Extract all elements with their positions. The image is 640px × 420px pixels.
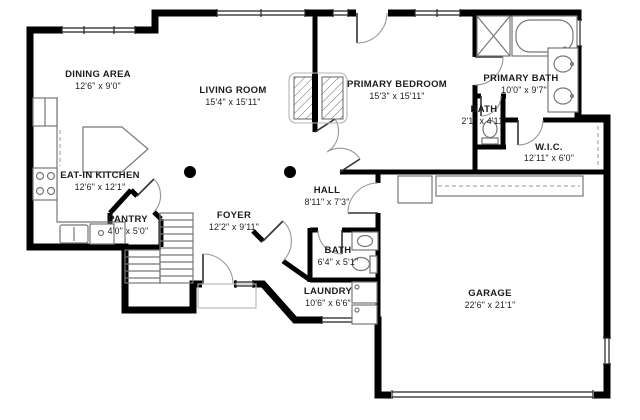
fireplace-masonry-right (322, 77, 343, 119)
room-dims-pantry: 4'0" x 5'0" (108, 226, 149, 236)
stair-treads-upper (160, 220, 193, 276)
room-label-eat-in-kitchen: EAT-IN KITCHEN (60, 170, 140, 181)
room-dims-primary-bedroom: 15'3" x 15'11" (369, 91, 424, 101)
room-dims-hall: 8'11" x 7'3" (304, 197, 349, 207)
toilet-tank (482, 138, 498, 144)
garage-fixtures (398, 176, 583, 203)
door-leaf (263, 221, 283, 241)
kitchen-island (83, 127, 148, 172)
room-label-primary-bath: PRIMARY BATH (483, 73, 558, 84)
bedroom-patio-door (356, 9, 388, 43)
garage-overhead-door (391, 390, 594, 399)
fireplace-masonry-left (294, 77, 315, 119)
door-swing-arc (348, 183, 378, 213)
room-label-living-room: LIVING ROOM (199, 85, 266, 96)
door-swing-arc (203, 254, 233, 284)
interior-walls (110, 13, 607, 320)
door-swing-arc (283, 221, 291, 261)
toilet-tank (370, 256, 377, 273)
bath-vanity (352, 232, 378, 250)
window-mask (333, 9, 348, 17)
room-label-hall-bath: BATH (325, 245, 352, 256)
interior-wall-segments (110, 13, 607, 320)
room-label-toilet-room: BATH (471, 104, 498, 115)
door-swing-arc (357, 13, 387, 43)
living-room-window (217, 9, 305, 17)
room-dims-primary-bath: 10'0" x 9'7" (501, 85, 547, 95)
post (184, 166, 196, 178)
garage-storage-cabinet (398, 176, 432, 203)
front-door (202, 254, 234, 288)
window-mask (603, 338, 611, 364)
door-swing-arc (327, 119, 360, 159)
room-dims-living-room: 15'4" x 15'11" (205, 97, 260, 107)
pantry-door (137, 179, 161, 212)
room-label-hall: HALL (314, 185, 341, 196)
door-swing-arc (154, 179, 161, 212)
room-dims-garage: 22'6" x 21'1" (465, 300, 516, 310)
bedroom-corner-french-doors (315, 119, 360, 172)
structural-posts (184, 166, 296, 178)
room-label-foyer: FOYER (217, 210, 251, 221)
door-leaf (137, 179, 154, 196)
room-dims-laundry: 10'6" x 6'6" (305, 298, 351, 308)
room-label-primary-bedroom: PRIMARY BEDROOM (347, 79, 447, 90)
room-label-dining-area: DINING AREA (65, 69, 131, 80)
room-label-garage: GARAGE (468, 288, 512, 299)
floor-plan: DINING AREA 12'6" x 9'0" LIVING ROOM 15'… (0, 0, 640, 420)
stair-treads-lower (125, 257, 160, 278)
door-opening (356, 9, 388, 17)
post (284, 166, 296, 178)
bedroom-window (415, 9, 460, 17)
room-dims-dining-area: 12'6" x 9'0" (75, 81, 121, 91)
window-mask (62, 26, 135, 34)
room-dims-toilet-room: 2'1" x 4'11" (461, 116, 506, 126)
floor-plan-canvas: DINING AREA 12'6" x 9'0" LIVING ROOM 15'… (0, 0, 640, 420)
room-label-pantry: PANTRY (108, 214, 148, 225)
room-label-laundry: LAUNDRY (304, 286, 353, 297)
room-dims-foyer: 12'2" x 9'11" (209, 222, 259, 232)
fireplace (289, 73, 347, 123)
garage-door-mask (391, 390, 594, 399)
dining-window (62, 26, 135, 34)
laundry-door (263, 221, 291, 261)
garage-entry-door (348, 183, 378, 213)
room-label-wic: W.I.C. (535, 142, 563, 153)
laundry-fixtures (352, 282, 377, 324)
garage-window (603, 338, 611, 364)
room-dims-hall-bath: 6'4" x 5'1" (318, 257, 359, 267)
room-dims-wic: 12'11" x 6'0" (524, 153, 574, 163)
door-leaf (315, 119, 360, 172)
bedroom-small-window (333, 9, 348, 17)
room-dims-eat-in-kitchen: 12'6" x 12'1" (75, 182, 126, 192)
